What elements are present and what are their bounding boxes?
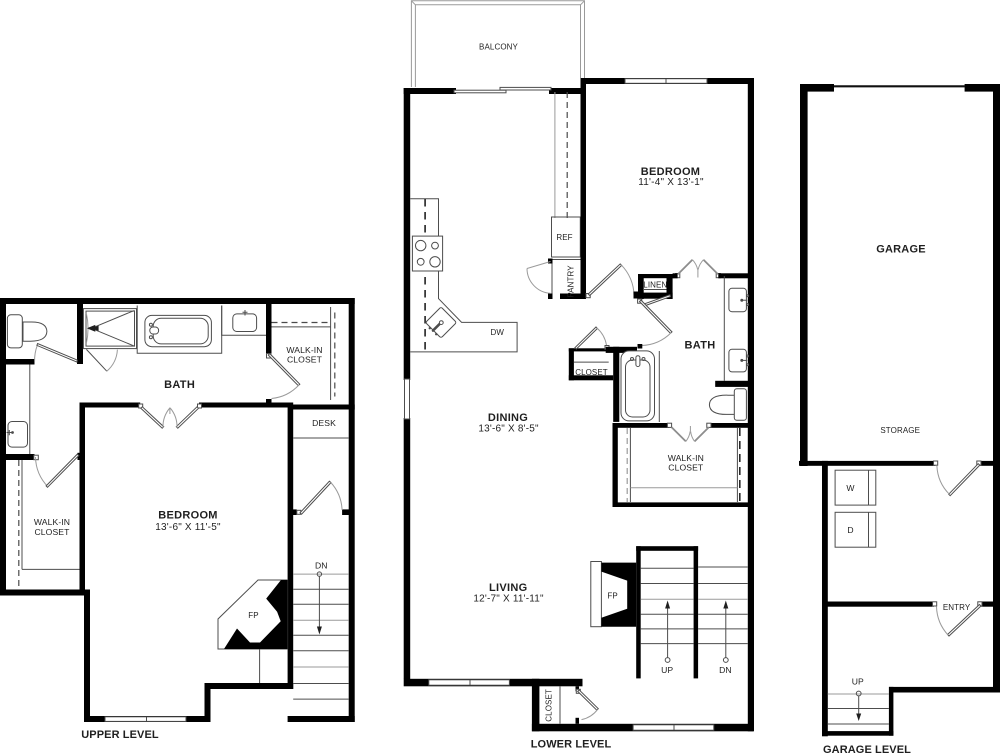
svg-text:REF: REF <box>556 233 572 242</box>
svg-text:LINEN: LINEN <box>643 281 667 290</box>
svg-text:WALK-IN: WALK-IN <box>34 517 70 527</box>
svg-text:BEDROOM: BEDROOM <box>641 166 701 178</box>
svg-text:CLOSET: CLOSET <box>287 354 323 364</box>
svg-text:UP: UP <box>852 676 864 686</box>
svg-text:GARAGE LEVEL: GARAGE LEVEL <box>823 744 911 756</box>
svg-text:LOWER LEVEL: LOWER LEVEL <box>531 738 612 750</box>
svg-text:PANTRY: PANTRY <box>567 265 576 298</box>
svg-text:DINING: DINING <box>488 412 528 424</box>
svg-text:GARAGE: GARAGE <box>876 243 925 255</box>
svg-text:BATH: BATH <box>164 379 195 391</box>
svg-text:11'-4" X 13'-1": 11'-4" X 13'-1" <box>638 177 704 188</box>
svg-text:BATH: BATH <box>685 340 716 352</box>
svg-text:FP: FP <box>607 591 617 600</box>
svg-text:WALK-IN: WALK-IN <box>286 345 322 355</box>
svg-text:DN: DN <box>719 665 732 675</box>
svg-text:FP: FP <box>248 611 258 620</box>
svg-text:BALCONY: BALCONY <box>479 43 518 52</box>
svg-text:13'-6" X 11'-5": 13'-6" X 11'-5" <box>155 522 221 533</box>
svg-text:UPPER LEVEL: UPPER LEVEL <box>81 729 159 741</box>
svg-text:DN: DN <box>315 561 328 571</box>
svg-text:WALK-IN: WALK-IN <box>668 453 704 463</box>
svg-text:UP: UP <box>661 665 673 675</box>
svg-text:CLOSET: CLOSET <box>668 462 704 472</box>
svg-text:12'-7" X 11'-11": 12'-7" X 11'-11" <box>473 594 544 605</box>
svg-text:DW: DW <box>491 328 505 337</box>
svg-text:W: W <box>846 483 855 493</box>
svg-text:CLOSET: CLOSET <box>545 689 554 722</box>
svg-text:ENTRY: ENTRY <box>943 603 971 612</box>
svg-text:LIVING: LIVING <box>489 582 527 594</box>
svg-text:13'-6" X 8'-5": 13'-6" X 8'-5" <box>478 424 539 435</box>
svg-text:CLOSET: CLOSET <box>575 368 608 377</box>
svg-text:CLOSET: CLOSET <box>35 527 71 537</box>
svg-text:DESK: DESK <box>312 418 336 428</box>
svg-text:D: D <box>847 525 853 535</box>
svg-text:BEDROOM: BEDROOM <box>158 509 218 521</box>
svg-text:STORAGE: STORAGE <box>880 426 920 435</box>
